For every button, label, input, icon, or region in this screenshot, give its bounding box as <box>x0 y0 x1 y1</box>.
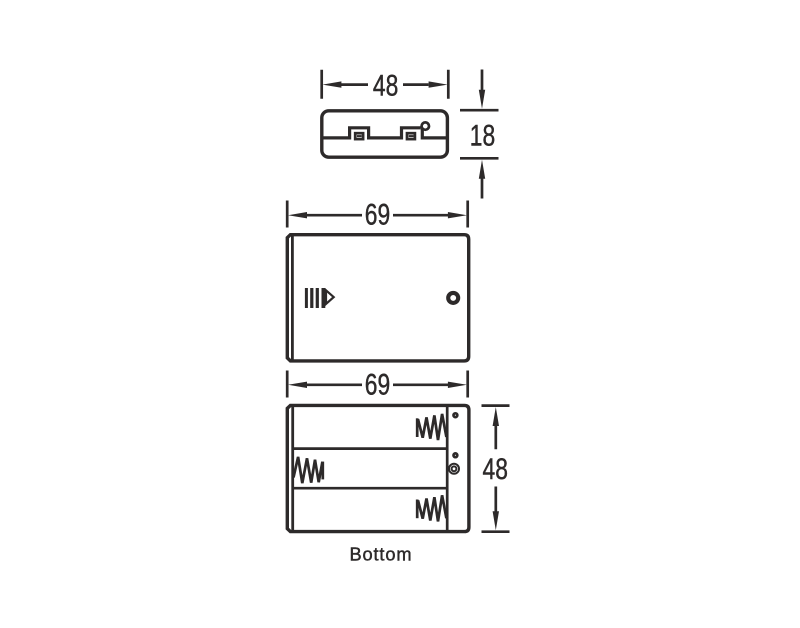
svg-text:18: 18 <box>470 120 495 152</box>
svg-text:48: 48 <box>373 70 398 102</box>
svg-text:Bottom: Bottom <box>350 544 412 564</box>
svg-text:69: 69 <box>365 199 390 231</box>
svg-text:48: 48 <box>483 454 508 486</box>
svg-text:69: 69 <box>365 370 390 402</box>
